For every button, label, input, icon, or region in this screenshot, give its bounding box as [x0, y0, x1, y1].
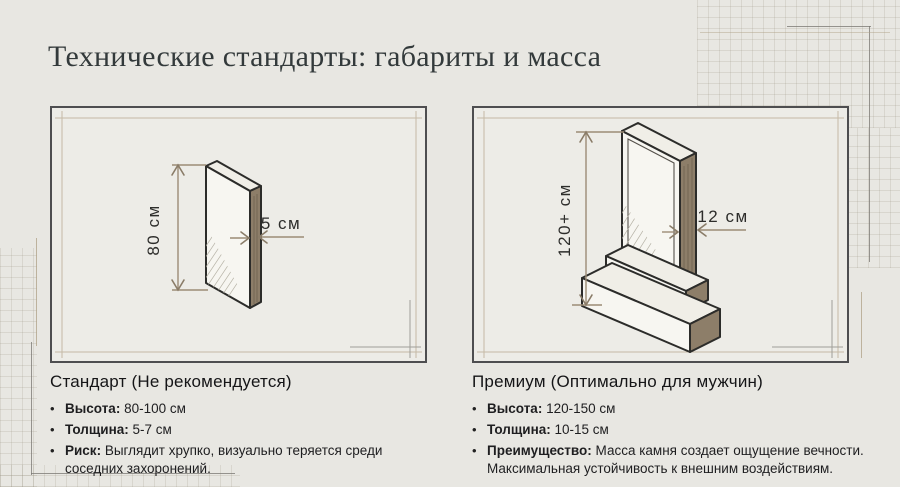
grid-paper-decoration — [0, 248, 37, 487]
bullet-icon: • — [50, 400, 65, 418]
spec-label: Толщина: — [487, 422, 551, 437]
standard-monument-diagram: 80 см 5 см — [52, 108, 425, 361]
spec-value: 80-100 см — [124, 401, 186, 416]
spec-item: • Толщина: 10-15 см — [472, 421, 892, 439]
standard-section-heading: Стандарт (Не рекомендуется) — [50, 372, 442, 392]
spec-value: 5-7 см — [133, 422, 172, 437]
corner-line-decoration — [869, 26, 870, 262]
corner-line-decoration — [36, 238, 37, 346]
premium-section-heading: Премиум (Оптимально для мужчин) — [472, 372, 892, 392]
premium-specs: Премиум (Оптимально для мужчин) • Высота… — [472, 372, 892, 482]
spec-label: Толщина: — [65, 422, 129, 437]
height-dimension-label: 80 см — [144, 204, 163, 255]
corner-line-decoration — [787, 26, 871, 27]
standard-specs: Стандарт (Не рекомендуется) • Высота: 80… — [50, 372, 442, 482]
standard-spec-list: • Высота: 80-100 см • Толщина: 5-7 см • … — [50, 400, 442, 479]
spec-value: Выглядит хрупко, визуально теряется сред… — [65, 443, 382, 476]
height-dimension: 80 см — [144, 165, 208, 290]
premium-monument-diagram: 120+ см 12 см — [474, 108, 847, 361]
bullet-icon: • — [472, 442, 487, 478]
spec-label: Высота: — [487, 401, 542, 416]
spec-item: • Толщина: 5-7 см — [50, 421, 442, 439]
corner-line-decoration — [700, 32, 890, 33]
bullet-icon: • — [472, 421, 487, 439]
thin-slab-drawing — [158, 161, 274, 318]
slide: Технические стандарты: габариты и масса — [0, 0, 900, 487]
spec-item: • Преимущество: Масса камня создает ощущ… — [472, 442, 892, 478]
page-title: Технические стандарты: габариты и масса — [48, 40, 601, 74]
spec-label: Высота: — [65, 401, 120, 416]
spec-item: • Высота: 120-150 см — [472, 400, 892, 418]
spec-value: 10-15 см — [555, 422, 609, 437]
spec-item: • Риск: Выглядит хрупко, визуально теряе… — [50, 442, 442, 478]
panel-standard-diagram: 80 см 5 см — [50, 106, 427, 363]
bullet-icon: • — [472, 400, 487, 418]
panel-premium-diagram: 120+ см 12 см — [472, 106, 849, 363]
corner-line-decoration — [31, 342, 32, 475]
spec-label: Преимущество: — [487, 443, 592, 458]
bullet-icon: • — [50, 421, 65, 439]
thickness-dimension-label: 12 см — [697, 207, 748, 226]
spec-value: 120-150 см — [546, 401, 615, 416]
spec-label: Риск: — [65, 443, 101, 458]
corner-line-decoration — [861, 292, 862, 358]
grid-paper-decoration — [846, 128, 900, 268]
height-dimension-label: 120+ см — [555, 183, 574, 257]
bullet-icon: • — [50, 442, 65, 478]
spec-item: • Высота: 80-100 см — [50, 400, 442, 418]
premium-spec-list: • Высота: 120-150 см • Толщина: 10-15 см… — [472, 400, 892, 479]
thickness-dimension-label: 5 см — [261, 214, 301, 233]
